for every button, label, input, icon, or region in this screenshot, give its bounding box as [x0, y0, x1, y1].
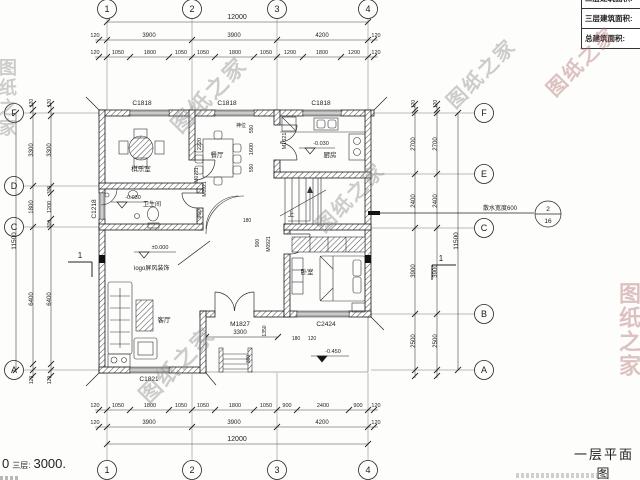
dim-text: 2220	[197, 138, 203, 150]
room-label: 餐厅	[211, 150, 225, 159]
room-label: 神位	[236, 122, 246, 129]
dimension-ticks	[13, 19, 461, 447]
dim-text: 900	[255, 239, 261, 248]
dim-text: 1050	[260, 403, 272, 409]
dim-text: 1200	[284, 50, 296, 56]
dim-text: 3900	[142, 420, 156, 426]
bed	[320, 256, 365, 301]
note-part2: 三层:	[12, 460, 30, 471]
clipped-edge-text	[0, 476, 20, 480]
dim-text: 11500	[453, 232, 460, 250]
opening-label: C1218	[91, 199, 98, 219]
faint-subtitle-text	[516, 473, 608, 478]
opening-label: M0921	[202, 181, 208, 197]
dresser	[292, 258, 303, 294]
detail-bubble-sheet: 16	[544, 218, 552, 225]
floor-plan-drawing: 12341234FDCAFECBA12000390039004200120120…	[0, 0, 640, 480]
dim-text: 1800	[29, 200, 35, 214]
dim-text: 120	[433, 100, 439, 109]
sofa	[108, 282, 132, 354]
room-label: 卫生间	[143, 200, 161, 208]
dim-text: 120	[90, 33, 99, 39]
room-label: 上	[288, 209, 295, 218]
dim-text: 550	[249, 125, 255, 134]
dim-text: 900	[353, 403, 362, 409]
apron-note: 散水宽度600	[483, 204, 518, 212]
dim-text: 12000	[227, 436, 247, 443]
grid-bubble-left-D-label: D	[11, 181, 18, 191]
room-label: 厨房	[324, 150, 337, 159]
dimension-lines	[16, 22, 458, 444]
grid-bubble-right-A-label: A	[481, 365, 487, 375]
dim-text: 2500	[411, 334, 417, 348]
dim-text: 3900	[433, 264, 439, 278]
coffee-table	[136, 300, 153, 331]
opening-label: M1827	[230, 321, 250, 328]
storey-height-note: 0 三层: 3000.	[2, 456, 66, 471]
dim-text: 4200	[315, 420, 329, 426]
logo-screen	[206, 196, 244, 234]
grid-bubble-top-3-label: 3	[274, 4, 279, 14]
grid-bubble-right-F-label: F	[481, 108, 487, 118]
grid-bubble-left-F-label: F	[11, 108, 17, 118]
dim-text: 3900	[411, 264, 417, 278]
section-number: 1	[439, 254, 444, 263]
dim-text: 120	[411, 100, 417, 109]
elevation-triangle	[317, 356, 327, 362]
dim-text: 2700	[411, 137, 417, 151]
dim-text: 120	[371, 50, 380, 56]
dim-text: 1050	[175, 50, 187, 56]
dim-text: 1050	[112, 403, 124, 409]
grid-bubble-top-2-label: 2	[189, 4, 194, 14]
dim-text: 120	[90, 420, 99, 426]
dim-text: 1350	[262, 325, 268, 336]
dim-text: 1600	[249, 143, 255, 155]
opening-label: C1818	[132, 100, 152, 107]
opening-label: M0921	[266, 236, 272, 252]
dim-text: 900	[197, 209, 203, 218]
grid-bubble-bottom-1-label: 1	[104, 465, 109, 475]
dim-text: 3900	[142, 33, 156, 39]
side-table	[108, 354, 130, 367]
dim-text: 550	[249, 164, 255, 173]
room-label: 卧室	[301, 267, 315, 276]
grid-bubble-right-B-label: B	[481, 309, 487, 319]
dim-text: 2400	[433, 194, 439, 208]
grid-bubble-right-E-label: E	[481, 169, 487, 179]
dim-text: 300	[47, 186, 53, 195]
area-row-3f: 三层建筑面积:	[582, 8, 640, 28]
dim-text: 120	[47, 376, 53, 385]
dim-text: 120	[90, 50, 99, 56]
dim-text: 120	[371, 33, 380, 39]
dim-text: 120	[308, 336, 317, 342]
room-label: 棋乐室	[131, 164, 151, 173]
dim-text: 1050	[197, 50, 209, 56]
dim-text: 1050	[175, 403, 187, 409]
grid-bubble-top-1-label: 1	[104, 4, 109, 14]
grid-bubble-bottom-3-label: 3	[274, 465, 279, 475]
dim-text: 1050	[197, 403, 209, 409]
dim-text: 11500	[11, 232, 18, 250]
stair-up-arrow	[307, 186, 313, 193]
dim-text: 2500	[433, 334, 439, 348]
elevation-text: -0.030	[125, 195, 141, 201]
dim-text: 1200	[47, 201, 53, 213]
stairs	[280, 178, 326, 226]
opening-label: M0721	[194, 167, 200, 183]
dim-text: 180	[243, 218, 252, 224]
dim-text: 300	[47, 220, 53, 229]
opening-label: C1818	[311, 100, 331, 107]
grid-bubble-left-A-label: A	[11, 365, 17, 375]
elevation-text: -0.450	[325, 349, 341, 355]
building-area-table: 二层建筑面积: 三层建筑面积: 总建筑面积:	[581, 0, 640, 49]
grid-bubble-left-C-label: C	[11, 222, 18, 232]
note-part1: 0	[2, 456, 9, 471]
dim-text: 1800	[316, 50, 328, 56]
grid-bubble-bottom-2-label: 2	[189, 465, 194, 475]
section-number: 1	[78, 251, 83, 260]
dim-text: 3300	[233, 330, 247, 336]
grid-bubble-bottom-4-label: 4	[365, 465, 370, 475]
floor-plan-page: 12341234FDCAFECBA12000390039004200120120…	[0, 0, 640, 480]
dim-text: 120	[29, 99, 35, 108]
screen-decoration-label: logo屏风装饰	[134, 264, 169, 272]
area-row-total: 总建筑面积:	[582, 28, 640, 48]
dim-text: 1050	[112, 50, 124, 56]
room-label: 客厅	[158, 315, 172, 324]
wardrobe	[292, 237, 365, 252]
grid-bubble-top-4-label: 4	[365, 4, 370, 14]
dim-text: 1800	[229, 50, 241, 56]
dim-text: 1800	[144, 403, 156, 409]
dim-text: 2400	[317, 403, 329, 409]
dim-text: 2700	[433, 137, 439, 151]
chess-table	[119, 129, 164, 167]
dim-text: 3300	[47, 143, 53, 157]
detail-bubble-number: 2	[546, 206, 550, 213]
area-row-2f: 二层建筑面积:	[582, 0, 640, 8]
opening-label: C1821	[139, 376, 159, 383]
elevation-text: ±0.000	[152, 245, 169, 251]
dim-text: 3900	[227, 420, 241, 426]
elevation-triangle	[305, 148, 315, 154]
dim-text: 6400	[47, 292, 53, 306]
dim-text: 120	[371, 403, 380, 409]
dim-text: 1200	[348, 50, 360, 56]
opening-label: C2424	[316, 321, 336, 328]
dim-text: 1800	[144, 50, 156, 56]
dim-text: 2400	[411, 194, 417, 208]
dim-text: 4200	[315, 33, 329, 39]
dim-text: 1800	[229, 403, 241, 409]
armchair	[134, 338, 157, 359]
dim-text: 180	[292, 336, 301, 342]
dim-text: 300	[246, 355, 252, 364]
dim-text: 120	[371, 420, 380, 426]
dim-text: 1050	[260, 50, 272, 56]
dim-text: 900	[282, 403, 291, 409]
logo-leader-line	[178, 241, 210, 265]
dim-text: 120	[90, 403, 99, 409]
dim-text: 120	[47, 99, 53, 108]
opening-label: M1621	[282, 133, 288, 150]
dim-text: 3900	[227, 33, 241, 39]
dim-text: 12000	[227, 14, 247, 21]
dim-text: 120	[29, 376, 35, 385]
note-part3: 3000.	[33, 456, 66, 471]
elevation-triangle	[117, 202, 127, 208]
kitchen-counter	[280, 117, 365, 160]
grid-extension-lines	[24, 18, 474, 460]
opening-label: C1818	[217, 100, 237, 107]
section-mark-1-left	[68, 262, 92, 277]
dim-text: 3300	[29, 143, 35, 157]
dim-text: 6400	[29, 292, 35, 306]
elevation-triangle	[139, 252, 149, 258]
elevation-text: -0.030	[313, 141, 329, 147]
grid-bubble-right-C-label: C	[481, 223, 488, 233]
text-layer: 12341234FDCAFECBA12000390039004200120120…	[5, 0, 552, 480]
